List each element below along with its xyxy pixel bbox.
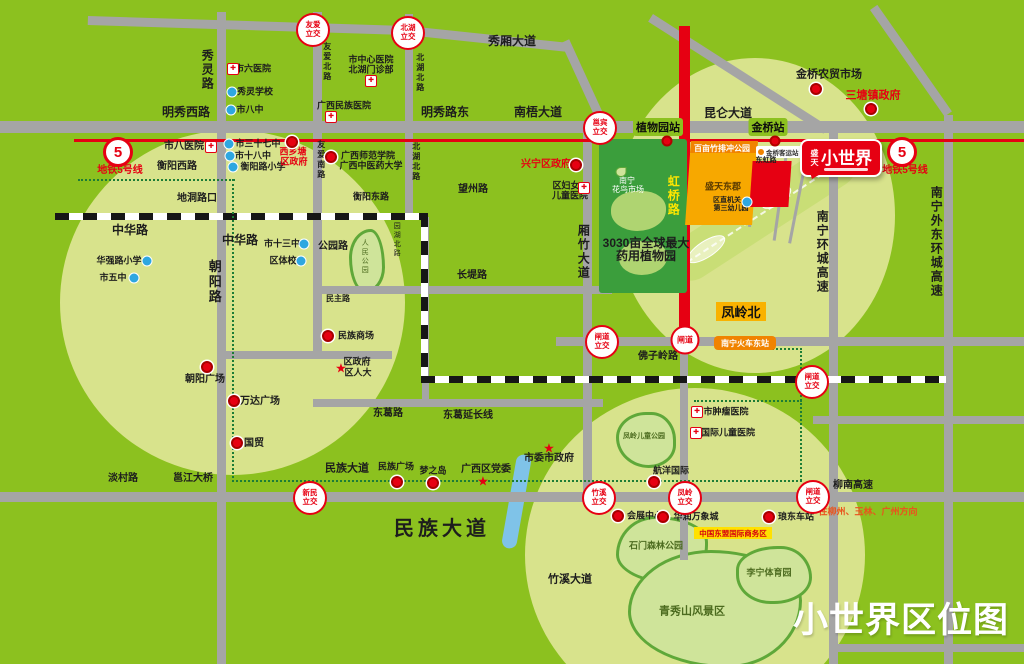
minzu-hospital: 广西民族医院 [317, 101, 371, 112]
changdi-road: 长堤路 [457, 270, 487, 282]
project-site-block [749, 161, 791, 207]
chaoyang-road: 朝阳路 [206, 260, 222, 305]
middle-school-37: 市三十七中 [235, 139, 280, 150]
guomao: 国贸 [244, 438, 264, 450]
dongge-road: 东葛路 [373, 408, 403, 420]
dancun-road: 淡村路 [108, 473, 138, 485]
school-icon [743, 198, 752, 207]
interchange-zhadao-hongqiao: 闸道 [671, 326, 700, 355]
road-main-east-west [0, 121, 1024, 133]
railway-east [421, 376, 946, 383]
gongyuan-road: 公园路 [318, 241, 348, 253]
metro-line5-number: 5 [114, 144, 122, 161]
interchange-label: 立交 [805, 382, 820, 391]
jinqiao-market: 金桥农贸市场 [796, 68, 862, 81]
road-minzu-avenue [0, 492, 1024, 502]
intl-children-hospital: 国际儿童医院 [701, 428, 755, 439]
poi-dot-icon [391, 476, 403, 488]
outer-east-ring-expressway: 南宁外东环城高速 [929, 186, 943, 298]
youai-north-road: 友爱北路 [322, 42, 332, 82]
garden-line2: 药用植物园 [616, 249, 676, 263]
road-east-branch [813, 416, 1024, 424]
minzu-square: 民族广场 [378, 462, 414, 473]
logo-brand-small: 盛天 [810, 149, 818, 167]
xiuling-school: 秀灵学校 [237, 87, 273, 98]
road-foziling [556, 337, 1024, 346]
yongjiang-bridge: 邕江大桥 [173, 473, 213, 485]
poi-dot-icon [427, 477, 439, 489]
hospital-cross-icon: ✚ [690, 427, 702, 439]
hospital-cross-icon: ✚ [365, 75, 377, 87]
district-congress: 区人大 [344, 368, 371, 379]
direction-note: 往柳州、玉林、广州方向 [818, 507, 917, 518]
dream-island: 梦之岛 [419, 466, 446, 477]
garden-lawn-icon [611, 191, 666, 231]
nanwu-avenue: 南梧大道 [514, 105, 562, 119]
huaqiang-primary: 华强路小学 [96, 256, 141, 267]
government-star-icon: ★ [477, 475, 489, 488]
middle-school-18: 市十八中 [235, 151, 271, 162]
xiangzhu-avenue: 厢竹大道 [576, 224, 590, 280]
poi-dot-icon [865, 103, 877, 115]
poi-dot-icon [763, 511, 775, 523]
metro-station-dot-icon [770, 136, 781, 147]
logo-brand-main: 小世界 [821, 144, 872, 169]
hospital-cross-icon: ✚ [227, 63, 239, 75]
foziling-road: 佛子岭路 [638, 351, 678, 363]
metro-station-jinqiao: 金桥站 [749, 118, 788, 136]
poi-dot-icon [231, 437, 243, 449]
minzu-mall: 民族商场 [338, 331, 374, 342]
hongqiao-road: 虹桥路 [666, 175, 680, 217]
school-icon [225, 140, 234, 149]
metro-line5-number: 5 [898, 144, 906, 161]
poi-dot-icon [810, 83, 822, 95]
central-hospital-line2: 北湖门诊部 [348, 65, 393, 76]
road-minzhu-changdi [316, 286, 612, 294]
nanning-east-railway-station-box: 南宁火车东站 [714, 336, 776, 350]
xiuling-road: 秀灵路 [200, 49, 214, 91]
minzu-avenue-big: 民族大道 [394, 517, 490, 541]
hospital-cross-icon: ✚ [578, 182, 590, 194]
poi-dot-icon [201, 361, 213, 373]
hengyang-east-road: 衡阳东路 [353, 192, 389, 203]
interchange-label: 立交 [593, 128, 608, 137]
fengling-children-park-name: 凤岭儿童公园 [623, 433, 665, 441]
qingxiushan-name: 青秀山风景区 [659, 605, 725, 618]
school-icon [297, 257, 306, 266]
hospital-cross-icon: ✚ [691, 406, 703, 418]
poi-dot-icon [228, 395, 240, 407]
metro-station-dot-icon [662, 136, 673, 147]
interchange-zhadao-rail: 闸道立交 [795, 365, 829, 399]
wangzhou-road: 望州路 [458, 184, 488, 196]
road-outer-east-ring [944, 115, 953, 664]
kunlun-avenue: 昆仑大道 [704, 106, 752, 120]
boundary-dotted-hospital-block [694, 400, 802, 402]
bamboo-park: 百亩竹排冲公园 [694, 144, 750, 154]
shengtian-dongjun: 盛天东郡 [705, 182, 741, 193]
hospital-cross-icon: ✚ [205, 141, 217, 153]
interchange-youai: 友爱立交 [296, 13, 330, 47]
interchange-zhuxi: 竹溪立交 [582, 481, 616, 515]
ring-expressway: 南宁环城高速 [815, 210, 829, 294]
boundary-dotted-north [78, 179, 235, 181]
metro-line5-east: 地铁5号线 [882, 165, 928, 177]
hospital-cross-icon: ✚ [325, 111, 337, 123]
xingning-govt: 兴宁区政府 [521, 159, 571, 171]
tcm-university: 广西中医药大学 [339, 161, 402, 172]
city-hospital-8: 市八医院 [164, 141, 204, 153]
chaoyang-square: 朝阳广场 [185, 374, 225, 386]
railway-vertical [421, 213, 428, 383]
shimen-park-name: 石门森林公园 [629, 541, 683, 552]
interchange-label: 立交 [678, 498, 693, 507]
city-hospital-6: 市六医院 [235, 64, 271, 75]
page-title: 小世界区位图 [793, 592, 1009, 643]
interchange-label: 立交 [806, 497, 821, 506]
park-leaf-icon [616, 167, 627, 177]
metro-station-botanical-garden: 植物园站 [633, 118, 683, 136]
interchange-label: 立交 [595, 342, 610, 351]
asean-cbd-box: 中国东盟国际商务区 [694, 527, 772, 539]
interchange-yongbin: 邕宾立交 [583, 111, 617, 145]
poi-dot-icon [286, 136, 298, 148]
poi-dot-icon [648, 476, 660, 488]
interchange-zhadao-west: 闸道立交 [585, 325, 619, 359]
kindergarten-line2: 第三幼儿园 [714, 205, 749, 213]
bus-station-label: 金桥客运站 [766, 147, 799, 157]
school-icon [143, 257, 152, 266]
hengyang-primary: 衡阳路小学 [240, 162, 285, 173]
beihu-north-road-1: 北湖北路 [415, 53, 425, 93]
hangyang-intl: 航洋国际 [653, 466, 689, 477]
boundary-dotted-link [772, 348, 802, 350]
liunan-expressway: 柳南高速 [833, 480, 873, 492]
metro-line5-badge-west: 5 [103, 137, 133, 167]
wanda-plaza: 万达广场 [240, 396, 280, 408]
hengyang-west-road: 衡阳西路 [157, 161, 197, 173]
xixiangtang-govt-line2: 区政府 [280, 157, 307, 168]
interchange-xinmin: 新民立交 [293, 481, 327, 515]
middle-school-13: 市十三中 [264, 239, 300, 250]
beihu-north-road-2: 北湖北路 [411, 142, 421, 182]
youai-south-road: 友爱南路 [316, 140, 326, 180]
railway-west [55, 213, 427, 220]
dongge-extension: 东葛延长线 [443, 410, 493, 422]
poi-dot-icon [325, 151, 337, 163]
interchange-label: 闸道 [677, 335, 693, 344]
poi-dot-icon [657, 511, 669, 523]
bird-market-line2: 花鸟市场 [612, 185, 644, 195]
road-top-west [88, 16, 420, 35]
zhonghua-road-1: 中华路 [112, 223, 148, 237]
minzu-avenue-small: 民族大道 [325, 462, 369, 475]
school-icon [226, 152, 235, 161]
road-dongge [313, 399, 603, 407]
metro-line5-badge-east: 5 [887, 137, 917, 167]
didong-junction: 地洞路口 [177, 193, 217, 205]
yuanhu-north-road: 园湖北路 [392, 222, 400, 258]
mingxiu-east-road: 明秀路东 [421, 105, 469, 119]
school-icon [300, 240, 309, 249]
poi-dot-icon [322, 330, 334, 342]
poi-dot-icon [612, 510, 624, 522]
city-middle-school-8: 市八中 [236, 105, 263, 116]
interchange-beihu: 北湖立交 [391, 16, 425, 50]
xiuxiang-avenue: 秀厢大道 [488, 34, 536, 48]
school-icon [130, 274, 139, 283]
location-map: 金桥客运站 凤岭北 南宁火车东站 中国东盟国际商务区 植物园站 金桥站 5 5 … [0, 0, 1024, 664]
lining-park-name: 李宁体育园 [746, 568, 791, 579]
road-youai [313, 12, 322, 357]
district-sports-school: 区体校 [269, 256, 296, 267]
government-star-icon: ★ [335, 362, 347, 375]
renmin-park-name: 人民公园 [360, 239, 368, 275]
minzhu-road: 民主路 [326, 294, 350, 304]
interchange-label: 立交 [303, 498, 318, 507]
school-icon [229, 163, 238, 172]
zhuxi-avenue: 竹溪大道 [548, 573, 592, 586]
school-icon [227, 106, 236, 115]
boundary-dotted-south [232, 480, 802, 482]
bus-station-dot-icon [758, 149, 764, 155]
fengling-north-box: 凤岭北 [716, 302, 766, 321]
government-star-icon: ★ [543, 442, 555, 455]
santang-govt: 三塘镇政府 [846, 89, 901, 102]
logo-tagline-bar [824, 168, 868, 171]
donghong-road: 东虹路 [756, 157, 777, 165]
school-icon [228, 88, 237, 97]
district-govt: 区政府 [343, 357, 370, 368]
interchange-zhadao-east: 闸道立交 [796, 480, 830, 514]
interchange-fengling: 凤岭立交 [668, 481, 702, 515]
road-ring-expressway [829, 127, 838, 664]
road-xiuling-chaoyang [217, 12, 226, 664]
road-southeast-branch [833, 644, 1024, 652]
zhonghua-road-2: 中华路 [222, 233, 258, 247]
mingxiu-west-road: 明秀西路 [162, 105, 210, 119]
project-logo: 盛天 小世界 [800, 139, 882, 177]
city-middle-school-5: 市五中 [99, 273, 126, 284]
tumor-hospital: 市肿瘤医院 [703, 407, 748, 418]
interchange-label: 立交 [592, 498, 607, 507]
poi-dot-icon [570, 159, 582, 171]
interchange-label: 立交 [401, 33, 416, 42]
interchange-label: 立交 [306, 30, 321, 39]
